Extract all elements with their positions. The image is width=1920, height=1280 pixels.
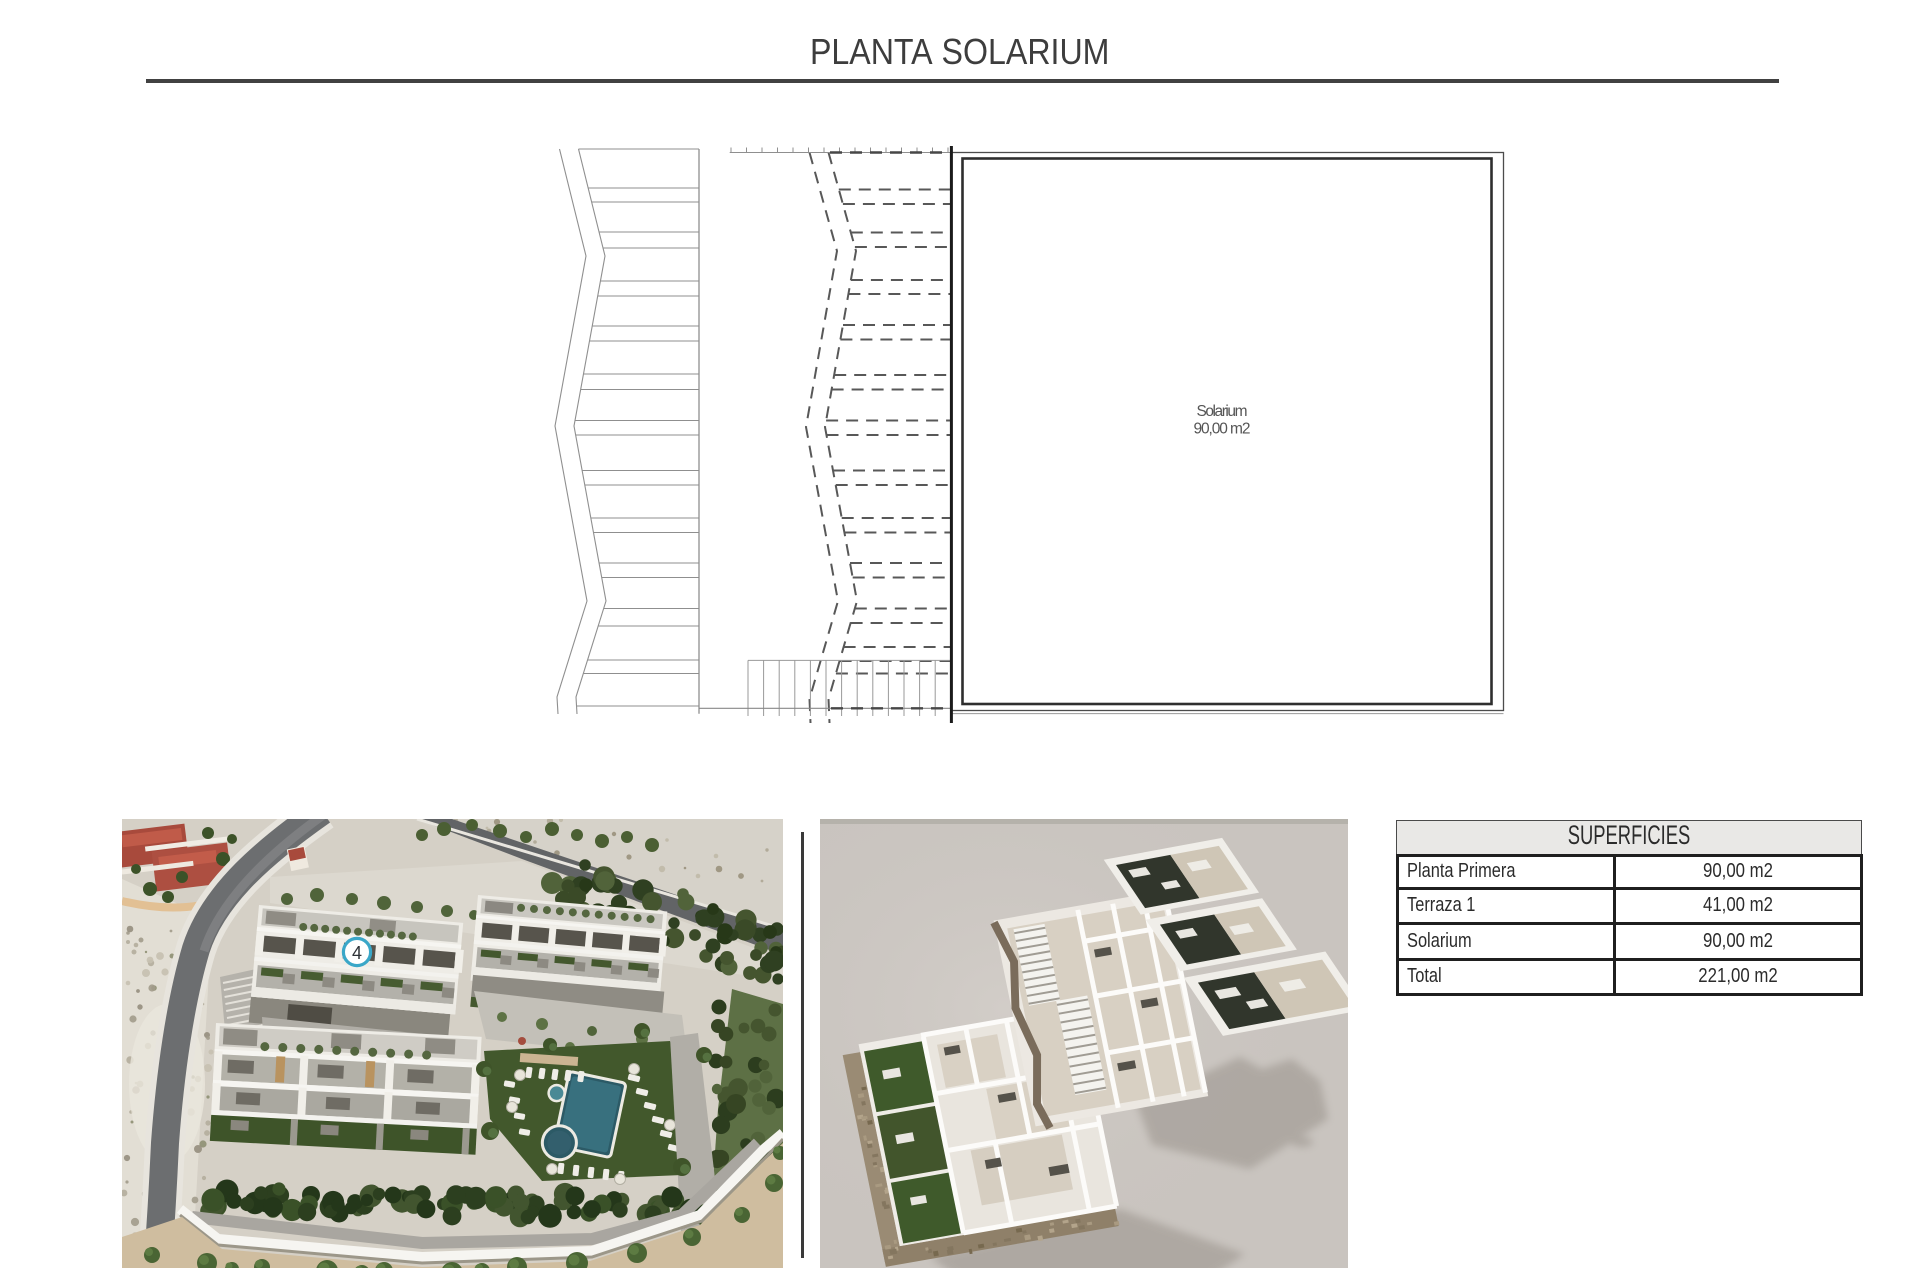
svg-text:90,00 m2: 90,00 m2	[1194, 421, 1251, 438]
svg-text:Solarium: Solarium	[1197, 403, 1248, 420]
svg-text:4: 4	[352, 943, 362, 963]
